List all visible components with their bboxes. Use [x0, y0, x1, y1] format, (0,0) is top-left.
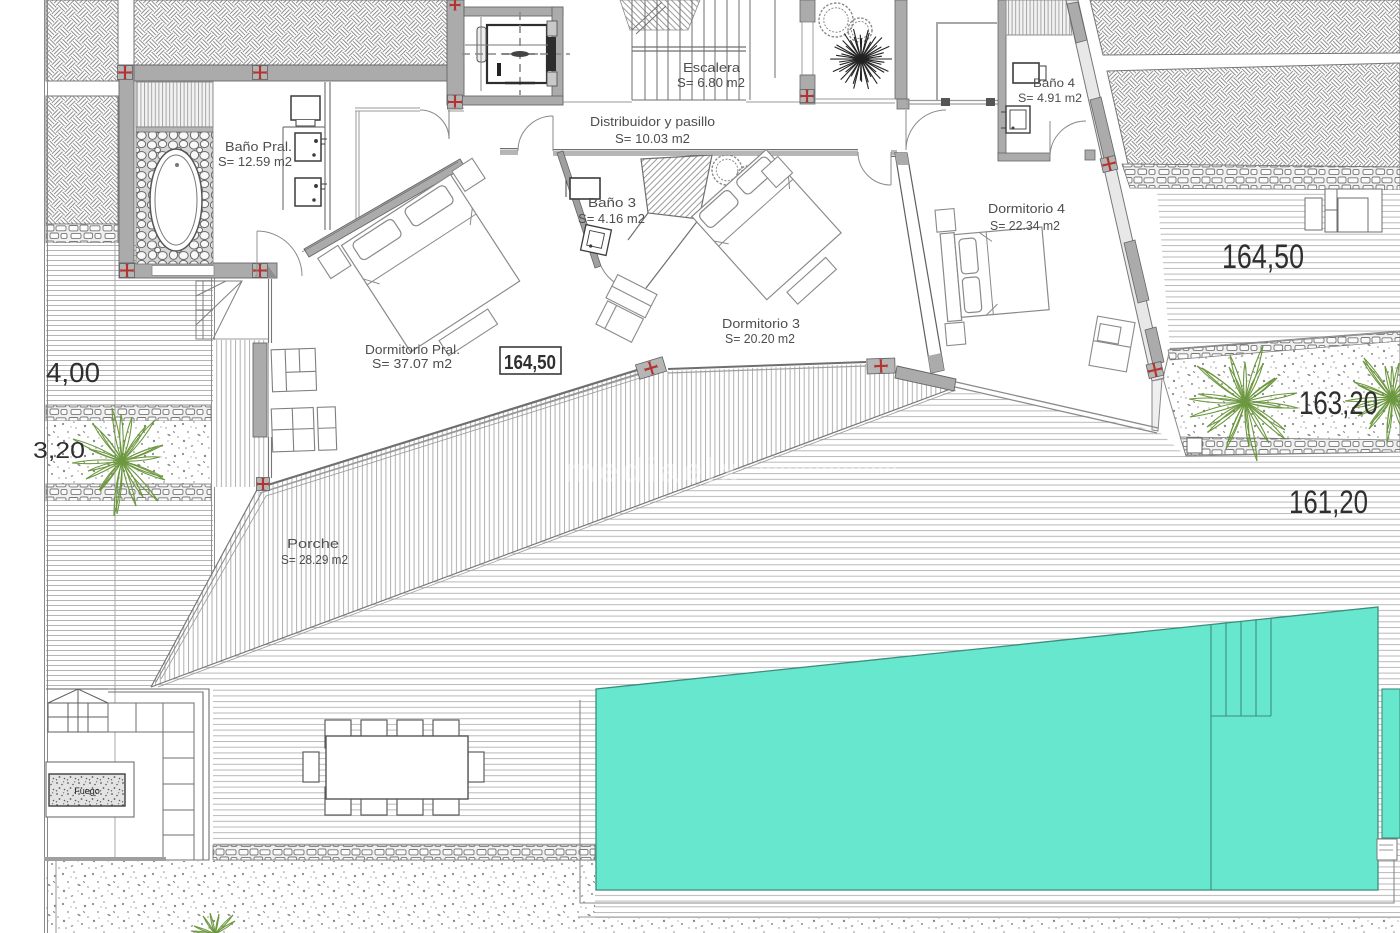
svg-text:Dormitorio Pral.: Dormitorio Pral.: [365, 342, 460, 357]
svg-text:Distribuidor y pasillo: Distribuidor y pasillo: [590, 114, 715, 129]
svg-text:164,50: 164,50: [1222, 238, 1304, 276]
svg-text:161,20: 161,20: [1289, 484, 1368, 520]
svg-text:Dormitorio 3: Dormitorio 3: [722, 316, 800, 331]
svg-text:Baño Pral.: Baño Pral.: [225, 139, 292, 154]
svg-text:S= 4.91 m2: S= 4.91 m2: [1018, 91, 1082, 105]
svg-text:163,20: 163,20: [1299, 385, 1378, 421]
svg-text:Porche: Porche: [287, 536, 339, 551]
svg-text:S= 20.20 m2: S= 20.20 m2: [725, 331, 795, 346]
svg-text:164,50: 164,50: [504, 352, 556, 374]
svg-text:S= 6.80 m2: S= 6.80 m2: [677, 75, 745, 90]
svg-text:Baño 3: Baño 3: [588, 195, 636, 210]
svg-text:S= 4.16 m2: S= 4.16 m2: [578, 211, 645, 226]
svg-text:S= 12.59 m2: S= 12.59 m2: [218, 154, 292, 169]
svg-text:S= 10.03 m2: S= 10.03 m2: [615, 131, 690, 146]
svg-text:mediaelx: mediaelx: [565, 452, 743, 490]
svg-text:Dormitorio 4: Dormitorio 4: [988, 201, 1065, 216]
svg-text:Baño 4: Baño 4: [1033, 76, 1075, 90]
svg-text:Fuego: Fuego: [74, 786, 100, 796]
svg-text:S= 37.07 m2: S= 37.07 m2: [372, 356, 452, 371]
svg-text:3,20: 3,20: [33, 437, 85, 463]
svg-text:S= 28.29 m2: S= 28.29 m2: [281, 552, 348, 567]
svg-text:S= 22.34 m2: S= 22.34 m2: [990, 218, 1060, 233]
svg-text:Escalera: Escalera: [683, 60, 741, 75]
svg-text:4,00: 4,00: [46, 357, 100, 388]
